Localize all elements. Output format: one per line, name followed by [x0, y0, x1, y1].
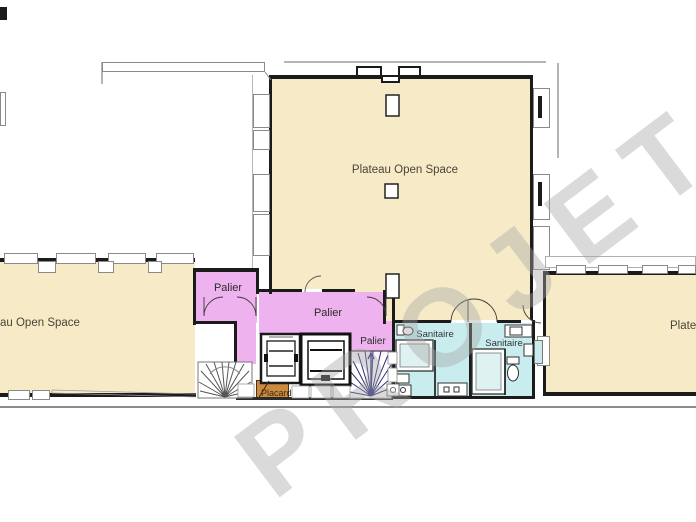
label-palier-left: Palier: [205, 282, 251, 294]
label-sanitaire-right: Sanitaire: [474, 338, 534, 349]
window-rightwing-1: [556, 265, 586, 274]
window-main-left-4: [253, 214, 270, 256]
window-rightwing-2: [598, 265, 628, 274]
window-leftwing-notch-3: [148, 261, 162, 273]
upper-floor-outline-right: [557, 63, 559, 158]
label-plateau-open-space-main: Plateau Open Space: [330, 164, 480, 176]
window-leftwing-notch-1: [38, 261, 56, 273]
window-rightwing-3: [642, 265, 668, 274]
room-sanitaire-right: [472, 323, 533, 397]
window-fragment-leftedge: [0, 92, 6, 126]
window-leftwing-bottom-1: [8, 390, 30, 400]
wall-sanitaire-bottom: [392, 396, 535, 399]
window-leftwing-notch-2: [98, 261, 114, 273]
wall-rightwing-left: [543, 271, 546, 396]
label-placard: Placard: [261, 388, 292, 398]
lobby-floor-panels: [238, 384, 350, 398]
wall-corridor: [392, 294, 395, 322]
site-boundary-bottom: [0, 406, 696, 408]
wall-palier-left-step-bottom: [193, 321, 237, 324]
wall-pilaster-left: [356, 66, 382, 77]
wall-center-bottom: [236, 397, 393, 400]
window-leftwing-1: [4, 253, 38, 264]
room-plateau-open-space-main: [271, 78, 531, 322]
room-open-space-left: [0, 262, 195, 396]
wall-palier-left-side: [193, 268, 196, 325]
wall-rightwing-bottom: [543, 392, 696, 396]
elevator-shaft-right: [301, 334, 350, 385]
window-main-left-1: [253, 94, 270, 128]
floor-plan: Plateau Open Space au Open Space Plate P…: [0, 0, 696, 522]
wall-sanitaire-mid: [469, 323, 472, 399]
wall-palier-left-top: [194, 268, 259, 272]
sanitaire-fixture-strip: [534, 340, 543, 364]
wall-palier-small-left: [383, 290, 386, 324]
elevator-shaft-left: [261, 334, 300, 383]
label-palier-small: Palier: [352, 336, 394, 347]
door-opening-sanitaire-right: [521, 320, 540, 323]
window-main-left-2: [253, 130, 270, 150]
window-rightwing-4: [678, 265, 696, 274]
window-main-left-3: [253, 174, 270, 212]
label-open-space-left: au Open Space: [0, 317, 80, 329]
wall-palier-left-step-right: [234, 321, 237, 365]
window-leftwing-2: [56, 253, 96, 264]
room-palier-left-upper: [196, 271, 257, 323]
wall-fragment-topleft: [0, 7, 7, 20]
stairs-left: [198, 362, 252, 398]
door-opening-palier-top: [302, 289, 322, 292]
window-mullion-1: [538, 96, 542, 118]
upper-floor-outline-top: [284, 61, 546, 63]
wall-pilaster-right: [398, 66, 421, 77]
wall-sanitaire-left: [392, 320, 395, 399]
room-palier-left-lower: [236, 322, 256, 364]
room-open-space-right: [546, 274, 696, 393]
door-opening-sanitaire: [451, 320, 497, 323]
label-open-space-right: Plate: [670, 320, 696, 332]
window-leftwing-bottom-2: [32, 390, 50, 400]
label-sanitaire-left: Sanitaire: [405, 329, 465, 340]
canopy-bar-topleft: [102, 62, 265, 72]
window-mullion-2: [538, 182, 542, 206]
label-palier-center: Palier: [298, 307, 358, 319]
